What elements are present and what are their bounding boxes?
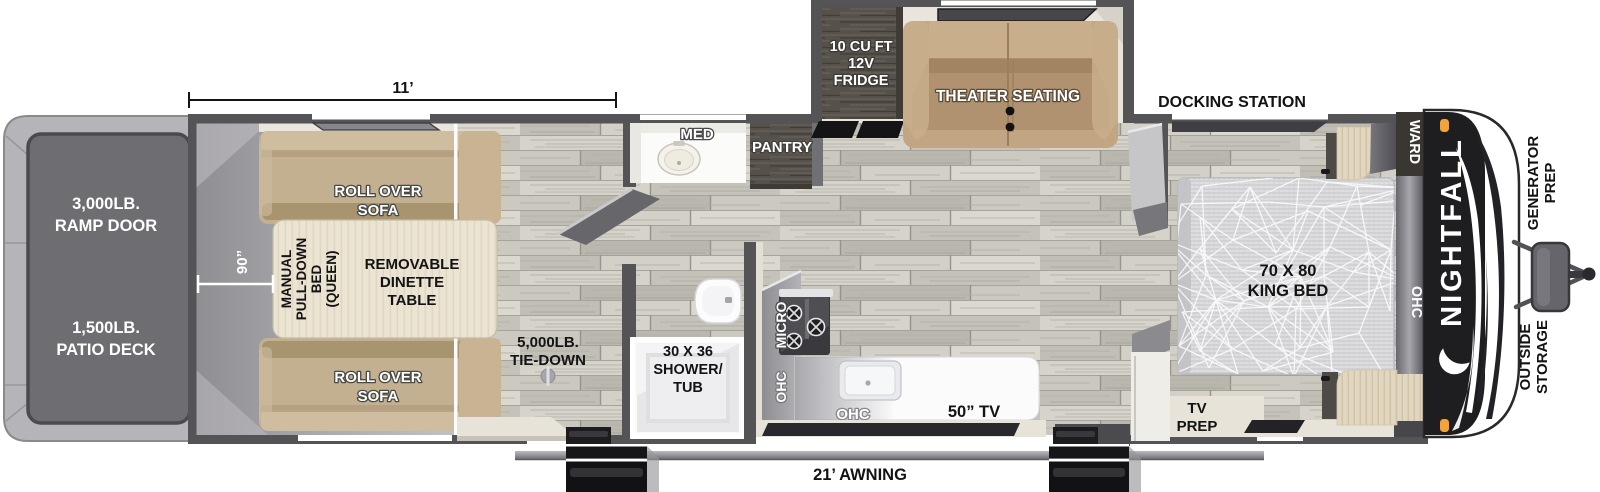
- svg-text:PREP: PREP: [1177, 418, 1218, 435]
- svg-text:90”: 90”: [234, 250, 251, 274]
- svg-text:OHC: OHC: [1408, 286, 1424, 319]
- svg-text:PATIO DECK: PATIO DECK: [56, 341, 155, 359]
- svg-text:SOFA: SOFA: [358, 202, 399, 219]
- svg-text:OHC: OHC: [773, 371, 789, 402]
- svg-text:TUB: TUB: [673, 380, 703, 396]
- svg-text:OUTSIDE: OUTSIDE: [1517, 324, 1534, 391]
- svg-text:PULL-DOWN: PULL-DOWN: [294, 238, 309, 320]
- svg-text:STORAGE: STORAGE: [1534, 320, 1551, 394]
- svg-text:5,000LB.: 5,000LB.: [517, 334, 579, 351]
- svg-text:DINETTE: DINETTE: [380, 274, 444, 291]
- svg-text:TV: TV: [1187, 400, 1206, 417]
- svg-text:(QUEEN): (QUEEN): [324, 251, 339, 308]
- svg-text:70 X 80: 70 X 80: [1260, 262, 1317, 280]
- svg-text:1,500LB.: 1,500LB.: [72, 319, 140, 337]
- svg-text:BED: BED: [309, 265, 324, 294]
- svg-text:MED: MED: [680, 126, 714, 143]
- svg-text:WARD: WARD: [1406, 120, 1422, 164]
- svg-text:ROLL OVER: ROLL OVER: [334, 183, 421, 200]
- svg-text:SHOWER/: SHOWER/: [653, 362, 722, 378]
- svg-text:21’ AWNING: 21’ AWNING: [813, 466, 907, 484]
- svg-text:10 CU FT: 10 CU FT: [830, 39, 893, 55]
- svg-text:REMOVABLE: REMOVABLE: [365, 256, 460, 273]
- svg-text:NIGHTFALL: NIGHTFALL: [1436, 137, 1468, 327]
- svg-text:FRIDGE: FRIDGE: [834, 73, 889, 89]
- svg-text:12V: 12V: [848, 56, 874, 72]
- svg-text:THEATER SEATING: THEATER SEATING: [936, 88, 1080, 105]
- svg-text:3,000LB.: 3,000LB.: [72, 195, 140, 213]
- svg-text:11’: 11’: [392, 80, 413, 97]
- svg-text:KING BED: KING BED: [1248, 282, 1329, 300]
- svg-text:MANUAL: MANUAL: [279, 250, 294, 309]
- svg-text:30 X 36: 30 X 36: [663, 344, 713, 360]
- svg-text:DOCKING STATION: DOCKING STATION: [1158, 94, 1306, 111]
- svg-text:SOFA: SOFA: [358, 388, 399, 405]
- svg-text:50” TV: 50” TV: [948, 403, 1000, 421]
- svg-text:MICRO: MICRO: [773, 302, 789, 349]
- svg-text:ROLL OVER: ROLL OVER: [334, 369, 421, 386]
- svg-text:GENERATOR: GENERATOR: [1525, 136, 1542, 231]
- svg-text:TABLE: TABLE: [388, 292, 437, 309]
- svg-text:PANTRY: PANTRY: [752, 139, 812, 156]
- svg-text:PREP: PREP: [1542, 163, 1559, 204]
- svg-text:RAMP DOOR: RAMP DOOR: [55, 217, 157, 235]
